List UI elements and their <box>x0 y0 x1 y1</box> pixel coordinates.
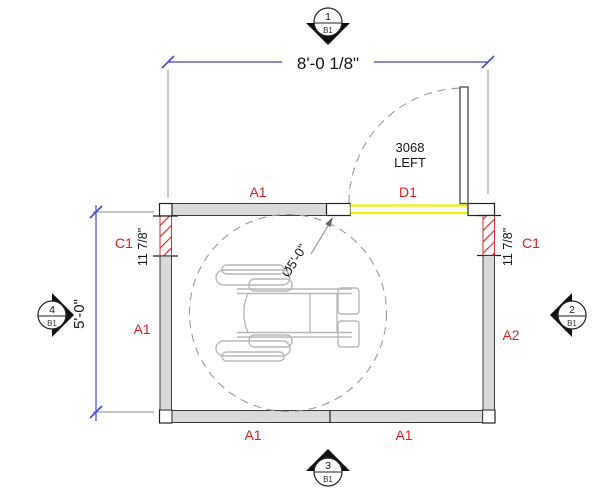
wall-right[interactable] <box>483 256 495 411</box>
wall-tag-left[interactable]: A1 <box>133 321 150 337</box>
marker-sheet: B1 <box>323 475 333 484</box>
seat-back <box>244 294 248 333</box>
elevation-marker-4-left[interactable]: 4 B1 <box>38 293 74 337</box>
wall-tag-corner-right[interactable]: C1 <box>522 235 540 251</box>
wall-segment-c1-right[interactable] <box>483 216 495 256</box>
wall-tag-top[interactable]: A1 <box>249 184 266 200</box>
dimension-overall-width[interactable]: 8'-0 1/8" <box>162 50 494 198</box>
marker-number: 1 <box>325 11 331 23</box>
dimension-width-text: 8'-0 1/8" <box>297 54 359 73</box>
marker-sheet: B1 <box>323 26 333 35</box>
door-opening[interactable] <box>351 204 469 216</box>
elevation-marker-2-right[interactable]: 2 B1 <box>550 293 586 337</box>
door-tag[interactable]: D1 <box>399 184 417 200</box>
leader-line <box>311 221 331 254</box>
marker-sheet: B1 <box>567 319 577 328</box>
door-leaf[interactable] <box>460 87 468 204</box>
leader-arrowhead <box>325 217 333 227</box>
wall-segment-c1-left[interactable] <box>160 216 172 256</box>
door-size-note[interactable]: 3068 LEFT <box>394 140 426 170</box>
floor-plan-drawing: 8'-0 1/8" 5'-0" Ø5'-0" <box>0 0 600 501</box>
footrest <box>338 288 359 314</box>
door-jamb-right <box>468 204 495 216</box>
rear-wheel <box>216 341 290 356</box>
wall-tag-corner-left[interactable]: C1 <box>115 235 133 251</box>
floor-plan-canvas: 8'-0 1/8" 5'-0" Ø5'-0" <box>0 0 600 501</box>
door-hand-text: LEFT <box>394 155 426 170</box>
marker-sheet: B1 <box>47 319 57 328</box>
marker-number: 2 <box>569 304 575 316</box>
corner-post-bottom-right <box>483 410 496 423</box>
elevation-marker-3-bottom[interactable]: 3 B1 <box>306 449 350 486</box>
elevation-marker-1-top[interactable]: 1 B1 <box>306 8 350 45</box>
wheelchair-symbol[interactable] <box>216 265 359 361</box>
left-segment-dimension: 11 7/8" <box>136 228 150 266</box>
wall-left[interactable] <box>160 256 172 410</box>
clearance-circle[interactable] <box>190 215 387 412</box>
wall-bottom[interactable] <box>172 411 483 423</box>
right-segment-dimension: 11 7/8" <box>501 228 515 266</box>
wall-tag-bottom-right[interactable]: A1 <box>395 427 412 443</box>
corner-post-bottom-left <box>160 410 173 423</box>
corner-post-top-left <box>160 204 173 217</box>
wall-top[interactable] <box>161 204 327 216</box>
door-jamb-left <box>327 204 351 216</box>
wall-tag-bottom-left[interactable]: A1 <box>244 427 261 443</box>
clearance-diameter-label: Ø5'-0" <box>278 241 310 280</box>
door-size-text: 3068 <box>396 140 425 155</box>
wall-tag-right[interactable]: A2 <box>502 327 519 343</box>
marker-number: 4 <box>49 304 55 316</box>
dimension-height-text: 5'-0" <box>71 299 88 329</box>
footrest <box>338 321 359 347</box>
marker-number: 3 <box>325 460 331 472</box>
